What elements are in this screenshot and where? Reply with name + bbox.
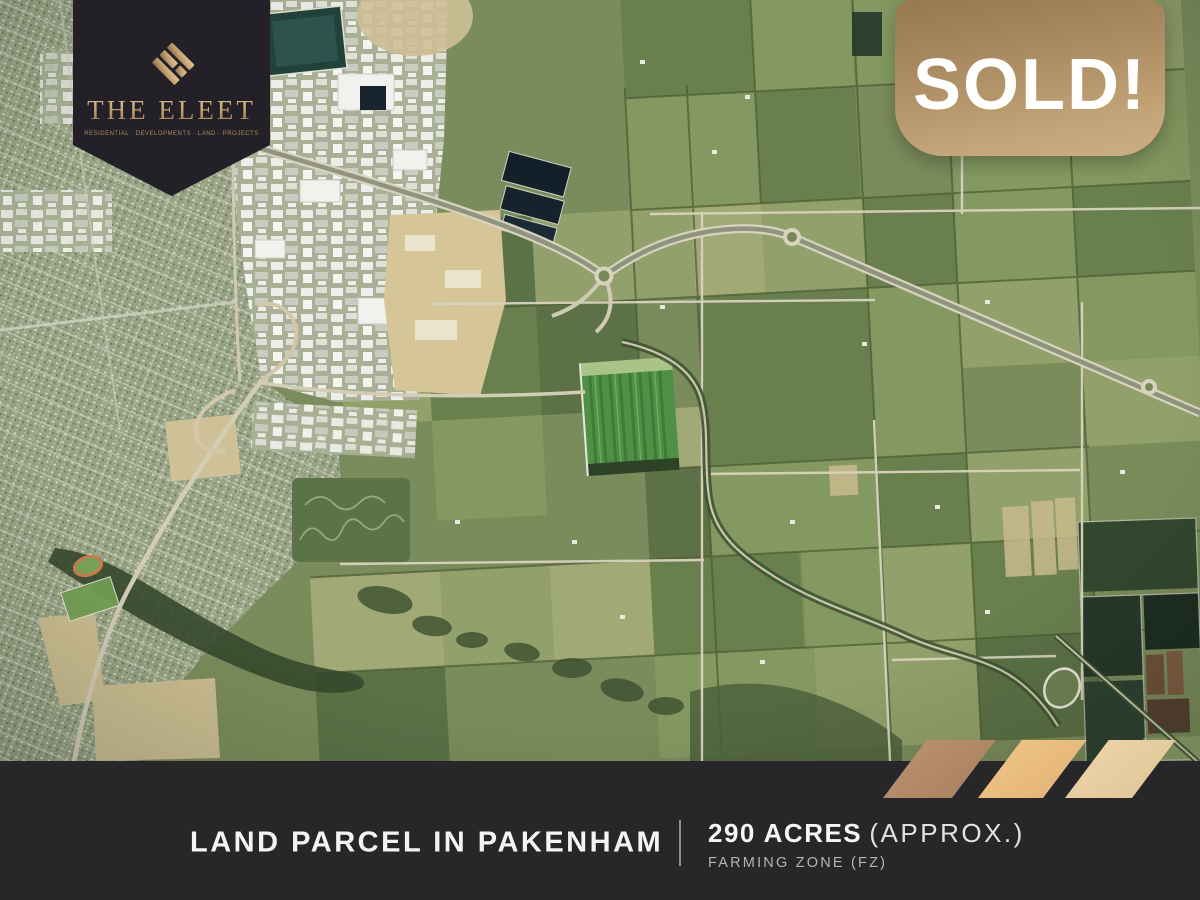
eleet-diamond-icon	[73, 42, 270, 93]
listing-details: 290 ACRES (APPROX.) FARMING ZONE (FZ)	[708, 818, 1025, 871]
sold-land-poster: LAND PARCEL IN PAKENHAM 290 ACRES (APPRO…	[0, 0, 1200, 900]
area-qualifier: (APPROX.)	[869, 818, 1024, 848]
zoning-label: FARMING ZONE (FZ)	[708, 855, 1025, 871]
listing-title: LAND PARCEL IN PAKENHAM	[190, 827, 663, 860]
brand-tagline: RESIDENTIAL · DEVELOPMENTS · LAND · PROJ…	[73, 131, 270, 137]
area-value: 290 ACRES	[708, 818, 862, 848]
sold-badge: SOLD!	[895, 0, 1165, 156]
sold-label: SOLD!	[913, 44, 1147, 126]
brand-name: THE ELEET	[73, 95, 270, 126]
divider	[679, 820, 681, 866]
area-line: 290 ACRES (APPROX.)	[708, 818, 1025, 849]
